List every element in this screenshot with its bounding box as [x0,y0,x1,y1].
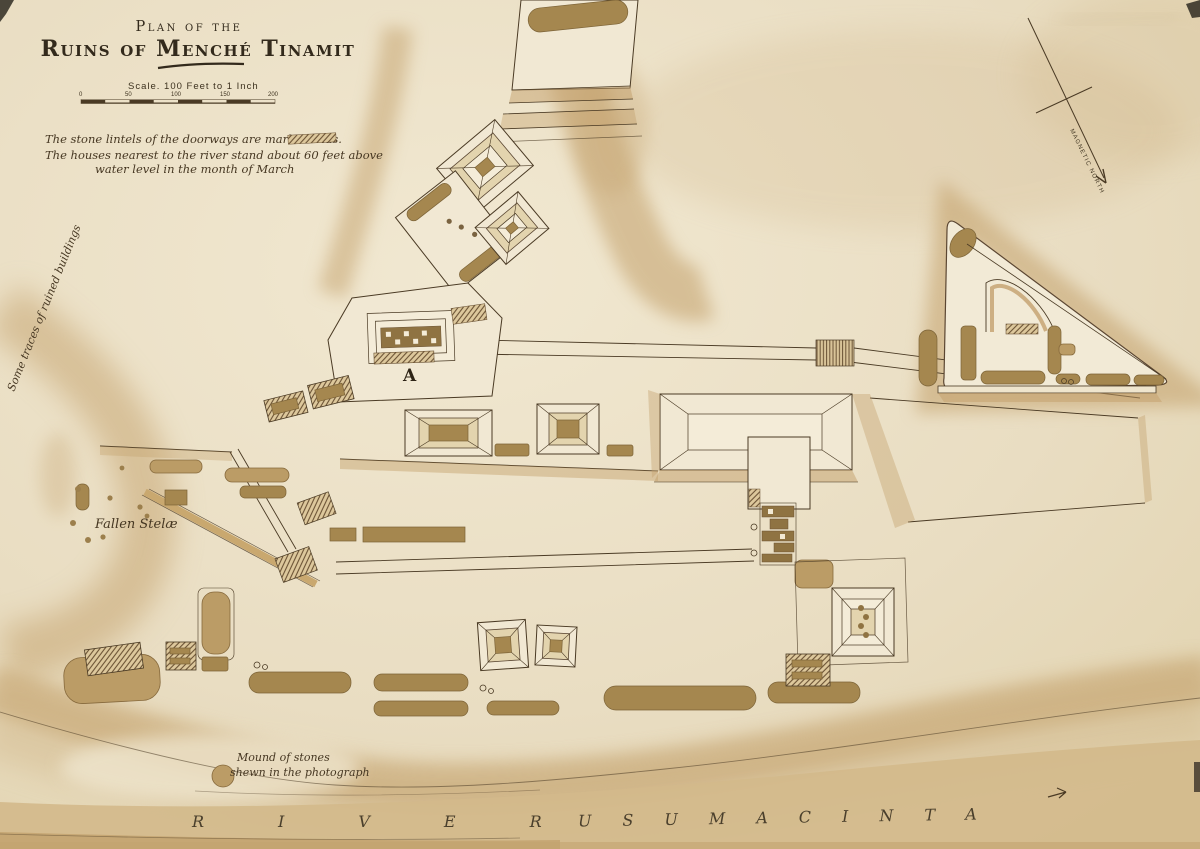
mound [240,486,286,498]
mound [487,701,559,715]
pyramid [405,410,492,456]
pyramid [537,404,599,454]
fallen-stelae-label: Fallen Stelæ [94,517,178,532]
mound [1056,374,1080,384]
mound [1059,344,1075,355]
map-title-line2: Ruins of Menché Tinamit [41,36,356,62]
mound [604,686,756,710]
mound [795,560,833,588]
mound [249,672,351,693]
mound [150,460,202,473]
pyramid [832,588,894,656]
mound [961,326,976,380]
lintel-mark [749,489,760,507]
mound [495,444,529,456]
mound-label-line2: shewn in the photograph [230,766,370,779]
pyramid [477,619,528,670]
mound [374,701,468,716]
scale-label: Scale. 100 Feet to 1 Inch [128,81,259,92]
stairway-hatch [816,340,854,366]
plan-drawing: RIVER USUMACINTA [0,0,1200,849]
scale-tick-50: 50 [125,92,132,98]
mound [202,592,230,654]
pyramid [535,625,577,667]
mound-label-line1: Mound of stones [236,751,330,764]
mound [1086,374,1130,385]
map-title-line1: Plan of the [136,19,243,35]
edge-mark [1194,762,1200,792]
mound [919,330,937,386]
mound [607,445,633,456]
lintel-mark [1006,324,1038,334]
river-edge-band [0,842,1200,849]
long-building [363,527,465,542]
mound [225,468,289,482]
note-line2: The houses nearest to the river stand ab… [45,148,383,162]
structure-a-label: A [402,366,417,386]
mound [330,528,356,541]
structure-a-walls [381,326,442,348]
map-plate: RIVER USUMACINTA [0,0,1200,849]
mound [981,371,1045,384]
scale-tick-150: 150 [220,92,231,98]
lintel-building [166,642,196,670]
lintel-mark [374,351,434,364]
lintel-building [786,654,830,686]
mound [1134,375,1164,385]
scale-tick-100: 100 [171,92,182,98]
scale-tick-200: 200 [268,92,279,98]
river-name-word1: RIVER [191,812,616,831]
structure-a-group: A [328,283,502,402]
mound [374,674,468,691]
mound [165,490,187,505]
mound [202,657,228,671]
note-line3: water level in the month of March [95,162,294,176]
